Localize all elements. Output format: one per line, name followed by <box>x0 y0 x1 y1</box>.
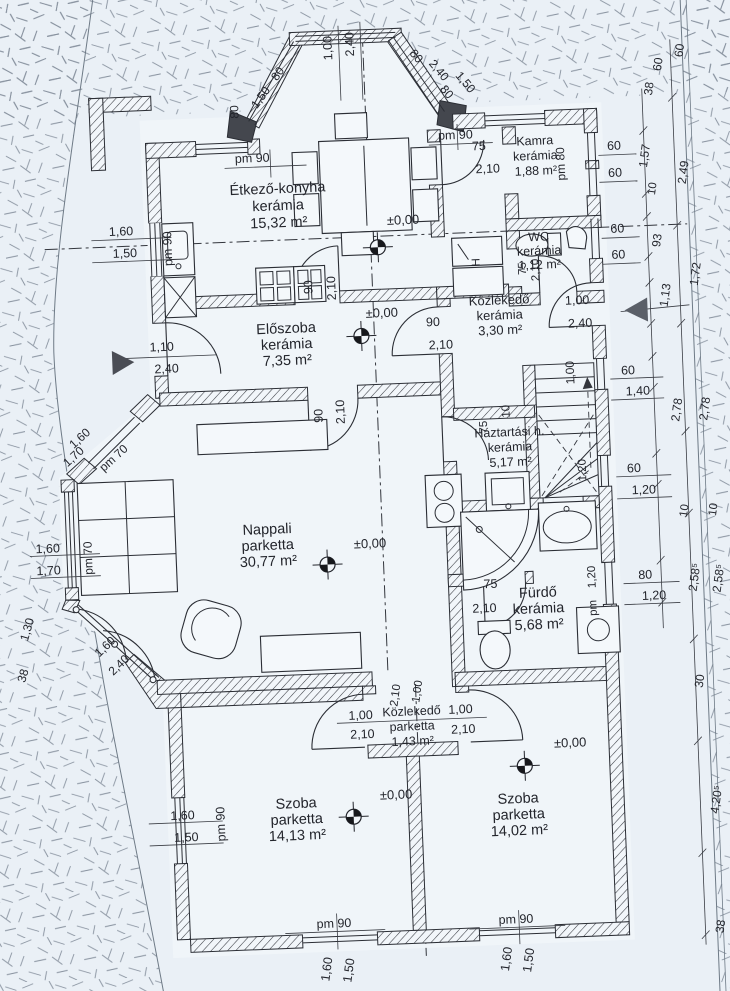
dim-140: 1,40 <box>625 383 650 398</box>
dim-100-corr-l: 1,00 <box>348 708 373 723</box>
sideboard <box>197 419 328 454</box>
level-label-kitchen: ±0,00 <box>386 212 419 228</box>
dim-160-szoba-win: 1,60 <box>170 808 195 823</box>
dim-210-furdo-door: 2,10 <box>472 601 497 616</box>
dim-pm90-south-right: pm 90 <box>498 912 533 927</box>
dim-100-east-entry: 1,00 <box>565 293 590 308</box>
room-haztartasi-finish: kerámia <box>487 439 532 455</box>
dim-110-entry: 1,10 <box>149 340 174 355</box>
dim-150-kitchen-win: 1,50 <box>112 246 137 261</box>
dim-210-nappali-door: 2,10 <box>333 399 348 424</box>
laundry-sink <box>485 471 530 511</box>
dim-75-haztartasi-door: 75 <box>478 421 491 434</box>
dim-pm-furdo-win: pm <box>587 600 600 616</box>
dim-75-furdo-door: 75 <box>483 577 498 592</box>
dim-240-entry: 2,40 <box>154 361 179 376</box>
room-kitchen-area: 15,32 m² <box>250 214 308 232</box>
floor-plan-drawing: Étkező-konyha kerámia 15,32 m² Kamra ker… <box>0 0 730 991</box>
level-label-szoba-right: ±0,00 <box>554 734 587 750</box>
room-kozlekedo2-area: 1,43 m² <box>391 733 434 749</box>
dim-10-e3: 10 <box>707 502 721 516</box>
dim-60-ne1: 60 <box>650 56 666 71</box>
wc-basin <box>566 226 587 249</box>
dim-30-se: 30 <box>692 673 708 688</box>
dim-80-bay-west: 80 <box>227 105 242 119</box>
room-eloszoba-area: 7,35 m² <box>262 352 312 370</box>
dim-210-wc-door: 2,10 <box>529 259 542 282</box>
room-nappali-area: 30,77 m² <box>239 553 297 571</box>
dim-75-kamra-door: 75 <box>472 139 487 154</box>
room-kitchen-finish: kerámia <box>252 197 305 215</box>
level-label-szoba-left: ±0,00 <box>380 786 413 802</box>
dim-210-eloszoba-door: 2,10 <box>428 337 453 352</box>
room-wc-name: WC <box>528 229 549 244</box>
dim-100-stairs: 1,00 <box>563 360 578 384</box>
room-furdo-area: 5,68 m² <box>514 616 564 634</box>
dim-10-e1: 10 <box>646 182 660 196</box>
room-kozlekedo2-finish: parketta <box>389 718 435 734</box>
level-label-eloszoba: ±0,00 <box>365 305 398 321</box>
dim-60-e3: 60 <box>610 221 625 236</box>
dim-100-corr-r: 1,00 <box>448 702 473 717</box>
dim-10-haztartasi: 10 <box>500 405 513 418</box>
dim-210-corr-l: 2,10 <box>350 727 375 742</box>
dim-240-bay: 2,40 <box>342 32 357 57</box>
dim-120-e2: 1,20 <box>642 588 667 603</box>
room-szoba-left-name: Szoba <box>275 795 318 813</box>
dim-60-e5: 60 <box>621 363 636 378</box>
room-kozlekedo1-area: 3,30 m² <box>478 322 523 339</box>
room-nappali-name: Nappali <box>242 521 292 539</box>
level-label-nappali: ±0,00 <box>353 535 386 551</box>
dim-120-furdo-win: 1,20 <box>586 566 599 589</box>
dim-pm80-kamra-window: pm 80 <box>553 147 568 181</box>
dim-160-west-win: 1,60 <box>35 541 60 556</box>
room-haztartasi-area: 5,17 m² <box>489 454 532 470</box>
dim-38-ne: 38 <box>641 81 657 96</box>
dim-38-se: 38 <box>713 919 729 934</box>
dim-60-e2: 60 <box>608 165 623 180</box>
dim-210-corr-r: 2,10 <box>451 722 476 737</box>
dim-60-e6: 60 <box>627 461 642 476</box>
stove <box>256 265 326 304</box>
dim-60-ne2: 60 <box>671 42 687 57</box>
dim-pm70-west-win: pm 70 <box>80 541 95 575</box>
dim-240-east-entry: 2,40 <box>568 316 593 331</box>
room-kamra-name: Kamra <box>516 133 553 148</box>
hob-unit <box>425 474 463 527</box>
dim-80-e: 80 <box>638 568 653 583</box>
fridge-letter: H <box>470 258 482 267</box>
dim-60-e4: 60 <box>611 247 626 262</box>
dim-170-west-win: 1,70 <box>36 563 61 578</box>
dim-160-kitchen-win: 1,60 <box>109 224 134 239</box>
room-szoba-right-area: 14,02 m² <box>490 822 548 840</box>
dim-150-szoba-win: 1,50 <box>174 830 199 845</box>
dim-90-eloszoba-door: 90 <box>426 315 441 330</box>
room-furdo-name: Fürdő <box>519 584 558 602</box>
dim-pm90-kitchen-west: pm 90 <box>160 231 175 266</box>
dim-210-kitchen-door: 2,10 <box>324 276 339 301</box>
dim-120-haztartasi-win: 1,20 <box>577 459 590 482</box>
dim-pm90-szoba-west: pm 90 <box>213 806 228 841</box>
room-kamra-finish: kerámia <box>513 148 558 164</box>
room-szoba-right-name: Szoba <box>497 790 540 808</box>
dim-75-wc-door: 75 <box>517 262 530 275</box>
dim-100-bay: 1,00 <box>320 36 335 61</box>
dim-120-e1: 1,20 <box>631 482 656 497</box>
dim-93: 93 <box>649 233 665 248</box>
washbasin <box>538 501 597 551</box>
dim-pm90-kitchen-top: pm 90 <box>235 151 270 166</box>
dim-60-e1: 60 <box>607 138 622 153</box>
dim-pm90-south-left: pm 90 <box>316 916 351 931</box>
dim-90-nappali-door: 90 <box>311 409 326 424</box>
dim-10-e2: 10 <box>678 504 692 518</box>
dim-210-kamra-door: 2,10 <box>475 161 500 176</box>
room-szoba-left-area: 14,13 m² <box>269 827 327 845</box>
floor-plan-scan: Étkező-konyha kerámia 15,32 m² Kamra ker… <box>0 0 730 991</box>
cabinet-low <box>260 632 361 672</box>
dim-pm90-kamra-top: pm 90 <box>438 127 473 142</box>
dim-90-kitchen-door: 90 <box>301 280 316 295</box>
sofa <box>77 480 177 596</box>
room-kamra-area: 1,88 m² <box>514 163 557 179</box>
